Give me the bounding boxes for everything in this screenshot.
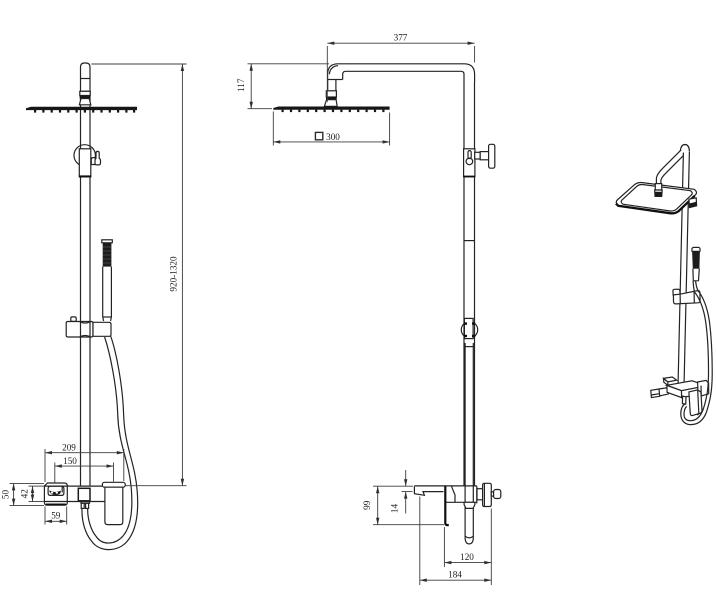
svg-text:99: 99 — [362, 500, 372, 510]
svg-text:14: 14 — [390, 504, 400, 514]
svg-text:184: 184 — [448, 570, 462, 580]
svg-text:209: 209 — [62, 442, 76, 452]
svg-text:300: 300 — [326, 132, 340, 142]
svg-text:59: 59 — [51, 511, 61, 521]
svg-text:42: 42 — [20, 489, 30, 499]
svg-text:120: 120 — [460, 552, 474, 562]
svg-text:377: 377 — [394, 33, 408, 43]
svg-text:50: 50 — [1, 490, 11, 500]
svg-text:150: 150 — [63, 456, 77, 466]
svg-text:117: 117 — [236, 78, 246, 92]
svg-text:920-1320: 920-1320 — [169, 256, 179, 292]
